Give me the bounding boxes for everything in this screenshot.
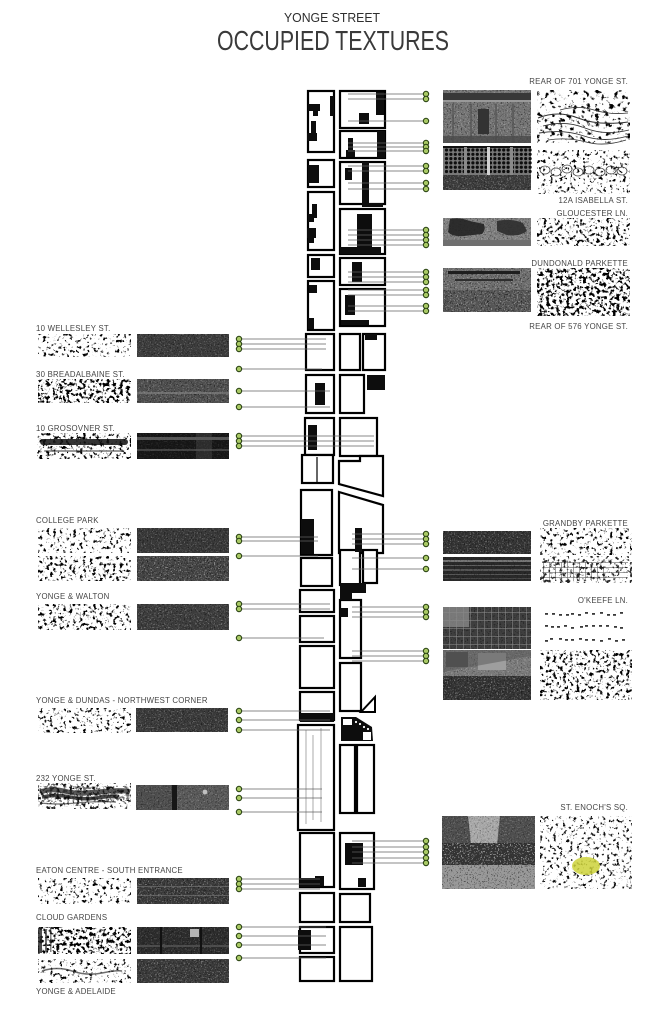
svg-text:EATON CENTRE - SOUTH ENTRANCE: EATON CENTRE - SOUTH ENTRANCE — [36, 866, 183, 875]
svg-text:YONGE & ADELAIDE: YONGE & ADELAIDE — [36, 987, 116, 996]
svg-text:YONGE STREET: YONGE STREET — [284, 10, 380, 25]
svg-text:232 YONGE ST.: 232 YONGE ST. — [36, 774, 96, 783]
svg-text:REAR OF 701 YONGE ST.: REAR OF 701 YONGE ST. — [529, 77, 628, 86]
svg-text:COLLEGE PARK: COLLEGE PARK — [36, 516, 99, 525]
svg-text:DUNDONALD PARKETTE: DUNDONALD PARKETTE — [531, 259, 628, 268]
svg-text:YONGE & WALTON: YONGE & WALTON — [36, 592, 110, 601]
svg-text:CLOUD GARDENS: CLOUD GARDENS — [36, 913, 107, 922]
svg-text:YONGE & DUNDAS - NORTHWEST COR: YONGE & DUNDAS - NORTHWEST CORNER — [36, 696, 208, 705]
svg-text:GRANDBY PARKETTE: GRANDBY PARKETTE — [543, 519, 628, 528]
svg-text:REAR OF 576 YONGE ST.: REAR OF 576 YONGE ST. — [529, 322, 628, 331]
svg-text:12A ISABELLA ST.: 12A ISABELLA ST. — [559, 196, 628, 205]
svg-text:30 BREADALBAINE ST.: 30 BREADALBAINE ST. — [36, 370, 125, 379]
svg-text:GLOUCESTER LN.: GLOUCESTER LN. — [556, 209, 628, 218]
svg-text:OCCUPIED TEXTURES: OCCUPIED TEXTURES — [217, 25, 449, 56]
svg-text:10 WELLESLEY ST.: 10 WELLESLEY ST. — [36, 324, 111, 333]
svg-text:ST. ENOCH'S SQ.: ST. ENOCH'S SQ. — [560, 803, 628, 812]
svg-text:O'KEEFE LN.: O'KEEFE LN. — [578, 596, 628, 605]
svg-text:10 GROSOVNER ST.: 10 GROSOVNER ST. — [36, 424, 115, 433]
